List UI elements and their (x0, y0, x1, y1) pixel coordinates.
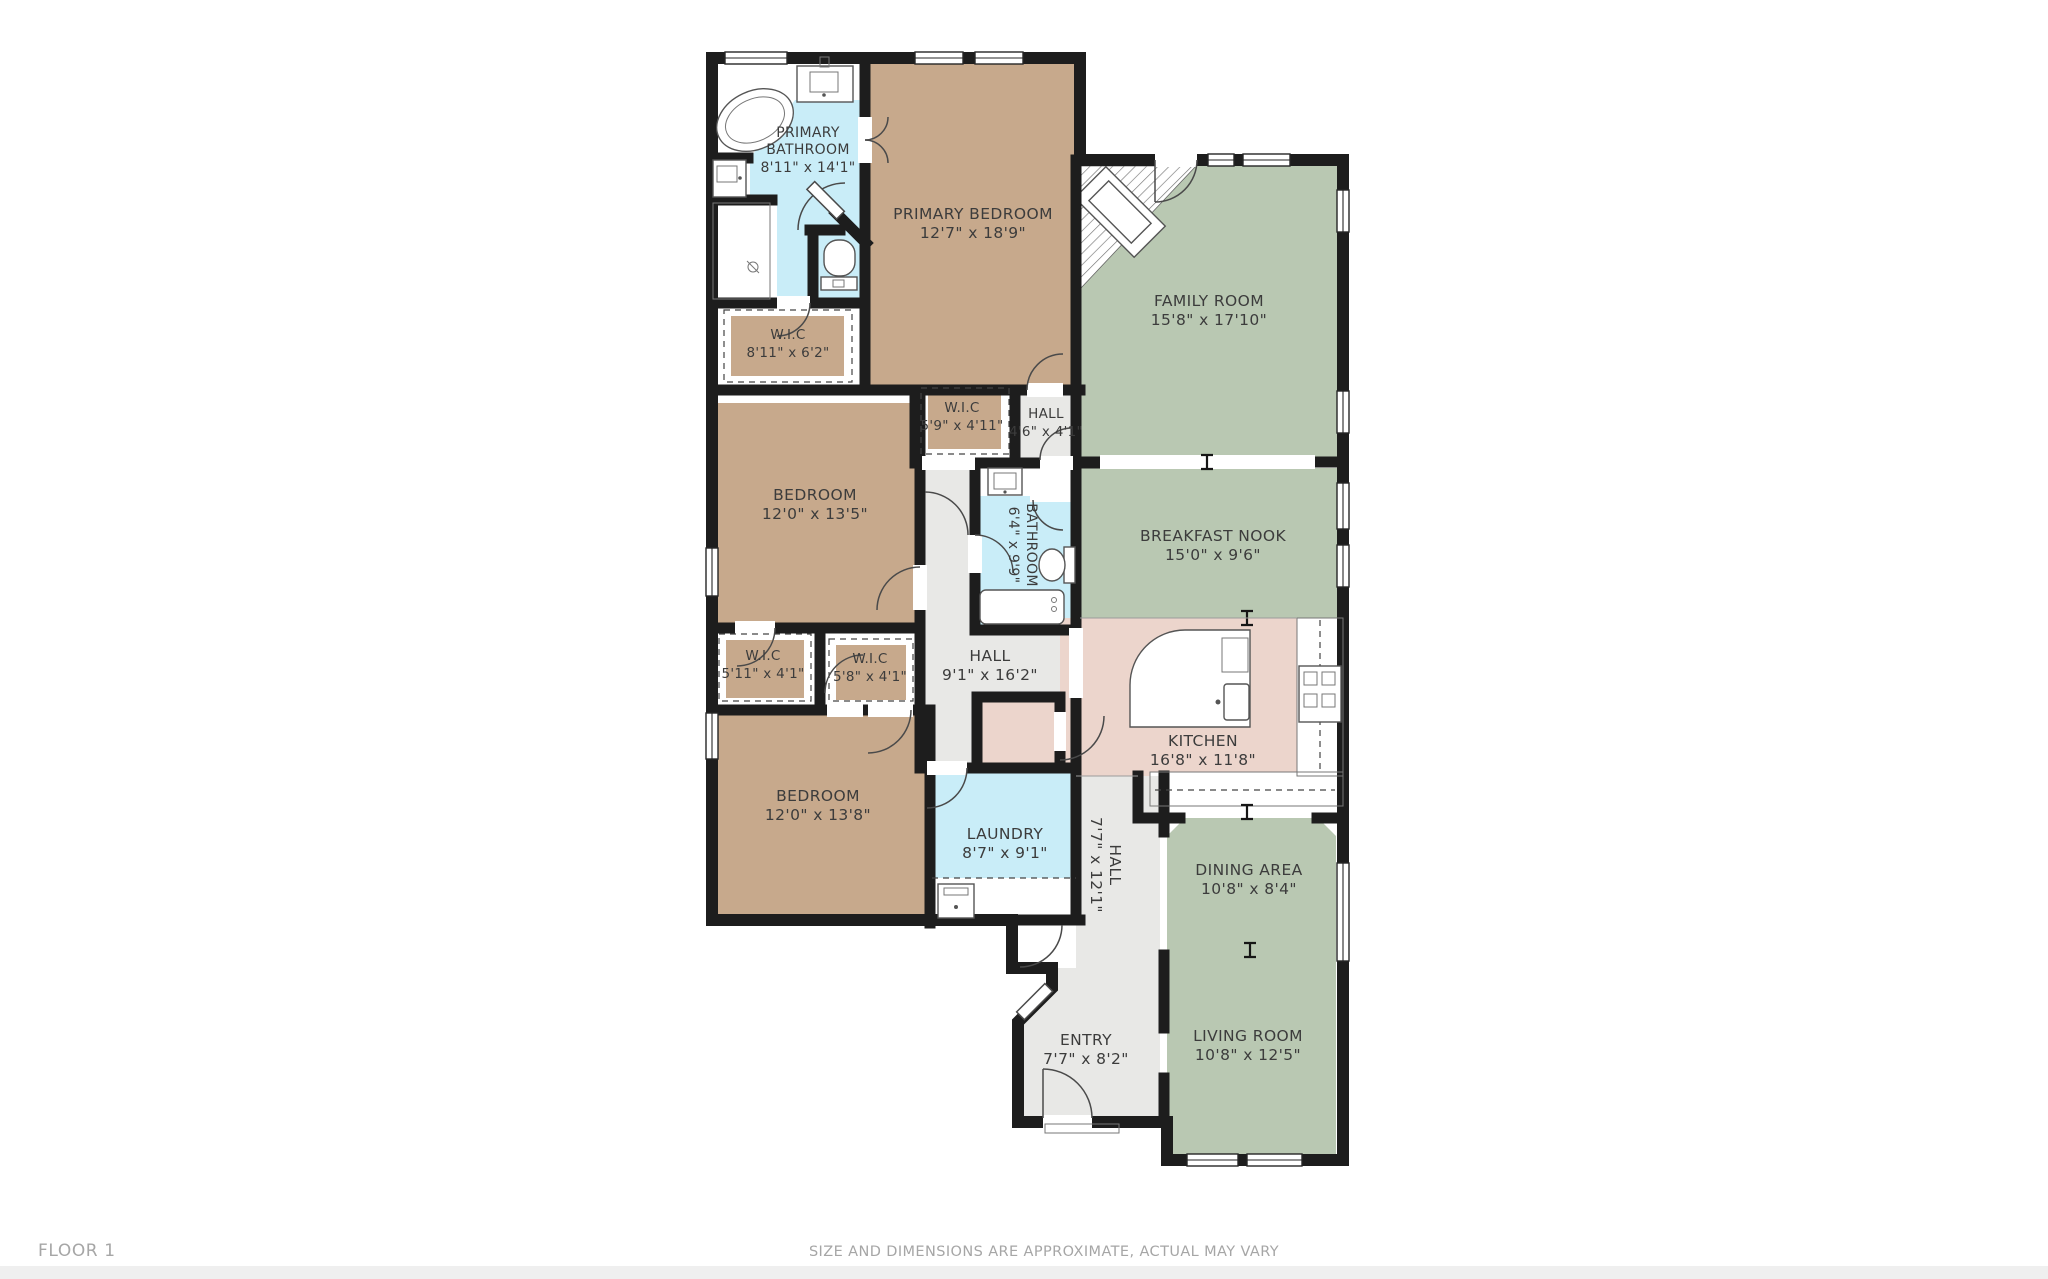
window (1187, 1154, 1238, 1166)
opening-primary-bedroom-hall (1027, 383, 1063, 397)
window (975, 52, 1023, 64)
opening-front-door (1043, 1115, 1092, 1129)
bathtub-icon (980, 590, 1064, 624)
bathroom-corner-alcove (1030, 466, 1076, 502)
window (1337, 545, 1349, 587)
room-label-living-room: LIVING ROOM10'8" x 12'5" (1193, 1027, 1303, 1064)
opening-bedroom-middle-door (913, 565, 927, 610)
room-label-dining-area: DINING AREA10'8" x 8'4" (1195, 861, 1302, 898)
vanity-icon (713, 160, 746, 197)
floor-plan-page: PRIMARYBATHROOM8'11" x 14'1" PRIMARY BED… (0, 0, 2048, 1279)
floor-plan: PRIMARYBATHROOM8'11" x 14'1" PRIMARY BED… (0, 0, 2048, 1279)
stove-icon (1299, 666, 1341, 722)
window (1208, 154, 1234, 166)
opening-family-room-door (1155, 153, 1197, 167)
opening-bathroom-door (968, 535, 982, 573)
disclaimer-text: SIZE AND DIMENSIONS ARE APPROXIMATE, ACT… (809, 1244, 1279, 1260)
window (915, 52, 963, 64)
shower-icon (713, 203, 770, 299)
floor-label: FLOOR 1 (38, 1241, 116, 1261)
window (1337, 391, 1349, 433)
window (1243, 154, 1290, 166)
window (1337, 863, 1349, 961)
opening-hall-upper-door (1040, 456, 1073, 470)
opening-pantry-door (1054, 712, 1066, 751)
room-label-laundry: LAUNDRY8'7" x 9'1" (962, 825, 1048, 862)
kitchen-island (1130, 630, 1250, 727)
opening-wic-primary (777, 296, 810, 310)
faucet-icon (1216, 700, 1221, 705)
opening-bedroom-lower-door (868, 703, 913, 717)
room-pantry-floor (977, 697, 1060, 765)
window (1337, 190, 1349, 232)
opening-wic-right-door (827, 703, 863, 717)
window (706, 548, 718, 596)
window (725, 52, 787, 64)
opening-wic-left-door (735, 621, 775, 635)
window (1247, 1154, 1302, 1166)
toilet-icon (821, 240, 857, 290)
window (1337, 483, 1349, 529)
room-label-bedroom-lower: BEDROOM12'0" x 13'8" (765, 787, 871, 824)
opening-hall-corridor (922, 456, 975, 470)
island-sink-icon (1224, 684, 1249, 720)
kitchen-counter-bottom (1150, 772, 1343, 806)
opening-marker (1241, 805, 1253, 819)
sink-icon (988, 468, 1022, 495)
room-label-family-room: FAMILY ROOM15'8" x 17'10" (1151, 292, 1267, 329)
opening-laundry-door (927, 761, 967, 775)
footer-bar (0, 1266, 2048, 1279)
opening-kitchen-entry (1069, 628, 1083, 698)
room-label-bedroom-middle: BEDROOM12'0" x 13'5" (762, 486, 868, 523)
washer-icon (938, 884, 974, 918)
toilet-icon (1039, 547, 1075, 583)
window (706, 713, 718, 759)
